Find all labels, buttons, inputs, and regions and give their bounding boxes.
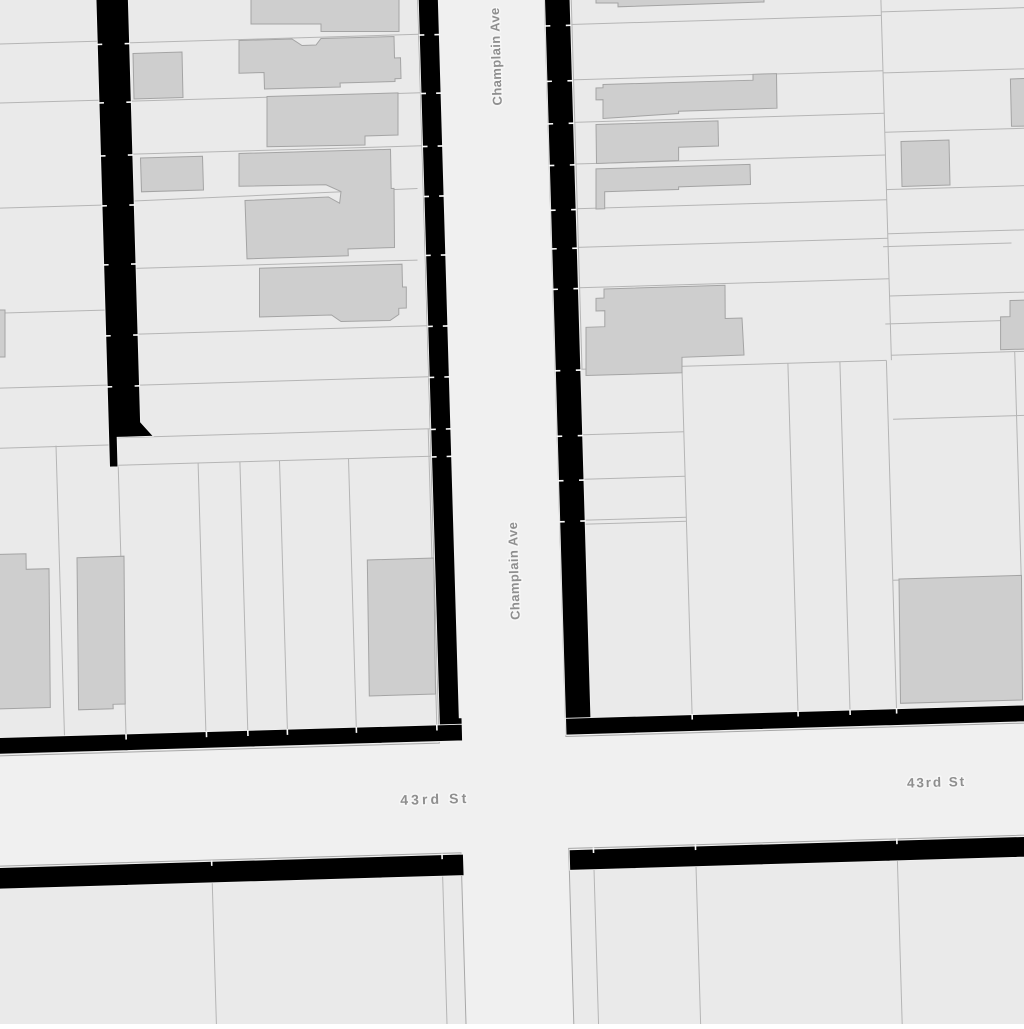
- svg-text:Champlain Ave: Champlain Ave: [487, 7, 505, 106]
- svg-text:43rd St: 43rd St: [907, 774, 966, 791]
- svg-text:Champlain Ave: Champlain Ave: [505, 522, 523, 621]
- svg-text:43rd St: 43rd St: [400, 790, 470, 808]
